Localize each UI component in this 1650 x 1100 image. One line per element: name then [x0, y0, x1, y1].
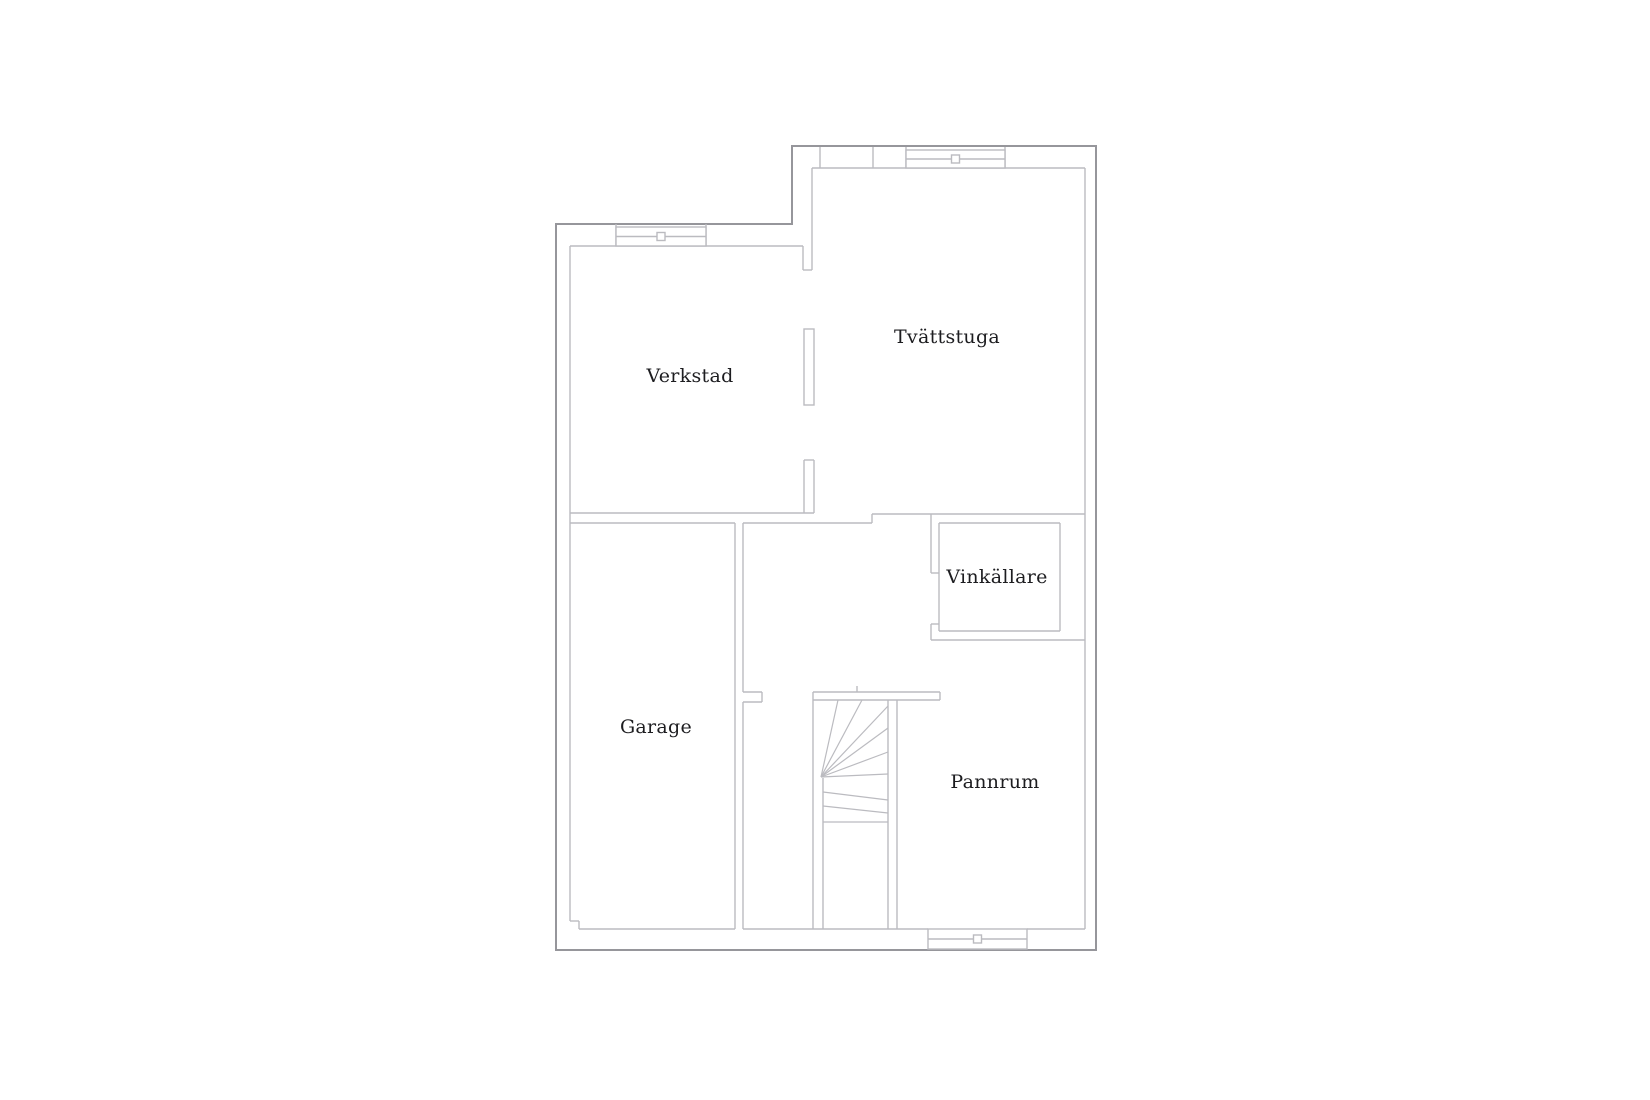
- stair-tread-line: [821, 700, 838, 777]
- stair-tread-line: [821, 700, 862, 777]
- floor-plan-page: VerkstadTvättstugaVinkällareGaragePannru…: [0, 0, 1650, 1100]
- window-tvattstuga-top: [906, 150, 1005, 168]
- room-label-tvattstuga: Tvättstuga: [894, 326, 1000, 348]
- floor-plan-windows: [616, 150, 1027, 949]
- stair-tread-line: [823, 806, 888, 813]
- window-center-square: [657, 233, 665, 241]
- window-center-square: [952, 155, 960, 163]
- room-label-garage: Garage: [620, 716, 692, 738]
- room-label-verkstad: Verkstad: [645, 365, 733, 387]
- floor-plan-walls: [556, 146, 1096, 950]
- room-label-vinkallare: Vinkällare: [945, 566, 1047, 588]
- stair-tread-line: [821, 774, 888, 777]
- window-verkstad-top: [616, 227, 706, 246]
- window-center-square: [974, 935, 982, 943]
- floor-plan-canvas: VerkstadTvättstugaVinkällareGaragePannru…: [0, 0, 1650, 1100]
- staircase: [821, 700, 888, 822]
- room-label-pannrum: Pannrum: [950, 771, 1039, 793]
- stair-tread-line: [821, 752, 888, 777]
- stair-tread-line: [823, 792, 888, 800]
- stair-tread-line: [821, 706, 888, 777]
- stair-tread-line: [821, 728, 888, 777]
- exterior-wall-outline: [556, 146, 1096, 950]
- window-pannrum-bottom: [928, 929, 1027, 949]
- floor-plan-room-labels: VerkstadTvättstugaVinkällareGaragePannru…: [620, 326, 1048, 793]
- wall-stub: [804, 329, 814, 405]
